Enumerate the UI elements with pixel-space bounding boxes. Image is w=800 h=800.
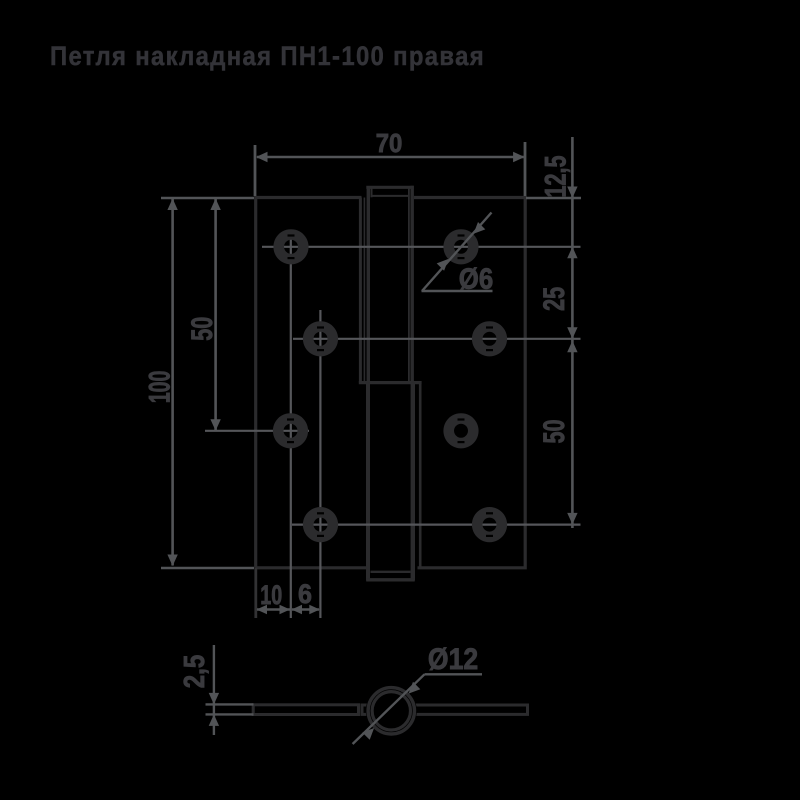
svg-text:Петля накладная ПН1-100 правая: Петля накладная ПН1-100 правая — [50, 42, 485, 72]
svg-text:50: 50 — [536, 419, 570, 443]
svg-text:100: 100 — [143, 371, 176, 404]
svg-text:10: 10 — [260, 581, 282, 611]
svg-text:Ø12: Ø12 — [428, 643, 478, 676]
svg-text:25: 25 — [536, 287, 570, 311]
svg-text:12,5: 12,5 — [538, 155, 572, 197]
svg-text:2,5: 2,5 — [178, 655, 211, 689]
svg-text:Ø6: Ø6 — [459, 262, 493, 295]
svg-text:6: 6 — [298, 578, 312, 609]
svg-text:70: 70 — [376, 129, 403, 158]
svg-text:50: 50 — [184, 317, 218, 341]
